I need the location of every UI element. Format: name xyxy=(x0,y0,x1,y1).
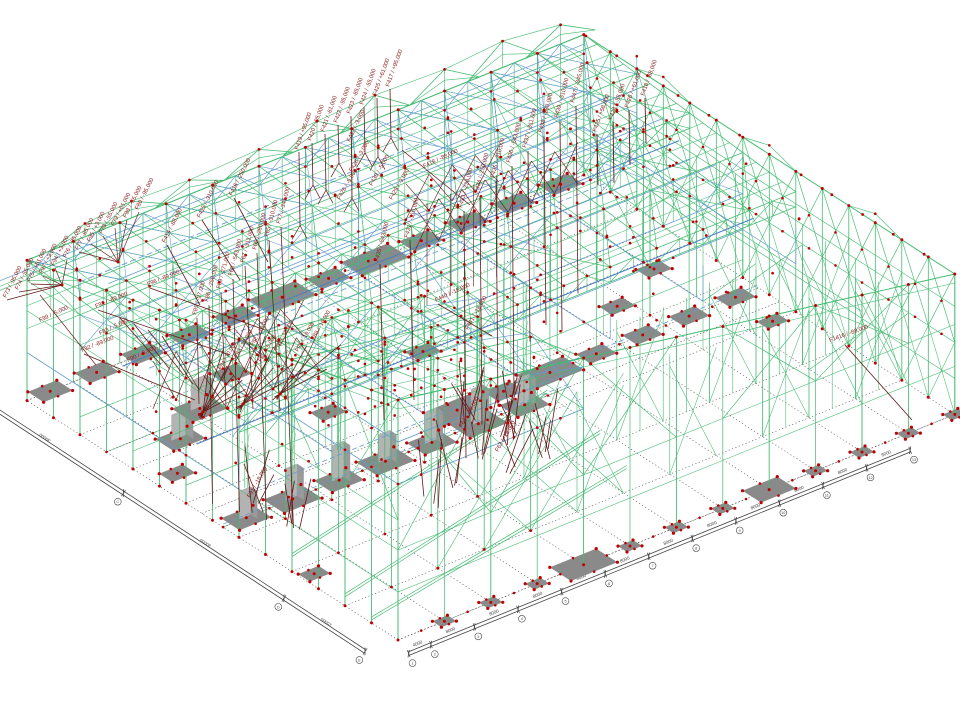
svg-text:3: 3 xyxy=(477,635,479,639)
svg-text:6: 6 xyxy=(608,582,610,586)
svg-text:F418 / -88,000: F418 / -88,000 xyxy=(640,59,659,96)
svg-text:E: E xyxy=(358,658,361,662)
svg-text:10: 10 xyxy=(781,511,785,515)
svg-text:13: 13 xyxy=(912,458,916,462)
svg-text:F437 / -311,000: F437 / -311,000 xyxy=(522,108,538,149)
svg-text:F414 / -88,000: F414 / -88,000 xyxy=(161,208,183,244)
svg-text:F434 / -250,000: F434 / -250,000 xyxy=(474,152,490,193)
svg-text:C: C xyxy=(116,500,119,504)
svg-text:1: 1 xyxy=(411,662,413,666)
svg-text:30000: 30000 xyxy=(38,432,52,443)
svg-text:12: 12 xyxy=(868,476,872,480)
svg-text:7: 7 xyxy=(652,564,654,568)
svg-text:9: 9 xyxy=(739,529,741,533)
svg-text:F436 / -543,000: F436 / -543,000 xyxy=(506,122,522,163)
svg-text:30000: 30000 xyxy=(198,537,212,548)
svg-text:11: 11 xyxy=(825,494,829,498)
svg-text:F439 / -310,000: F439 / -310,000 xyxy=(554,77,570,118)
svg-text:2: 2 xyxy=(434,653,436,657)
svg-text:5: 5 xyxy=(564,600,566,604)
svg-text:4: 4 xyxy=(521,617,523,621)
svg-text:8: 8 xyxy=(695,547,697,551)
svg-text:D: D xyxy=(277,605,280,609)
svg-text:15000: 15000 xyxy=(319,617,333,628)
